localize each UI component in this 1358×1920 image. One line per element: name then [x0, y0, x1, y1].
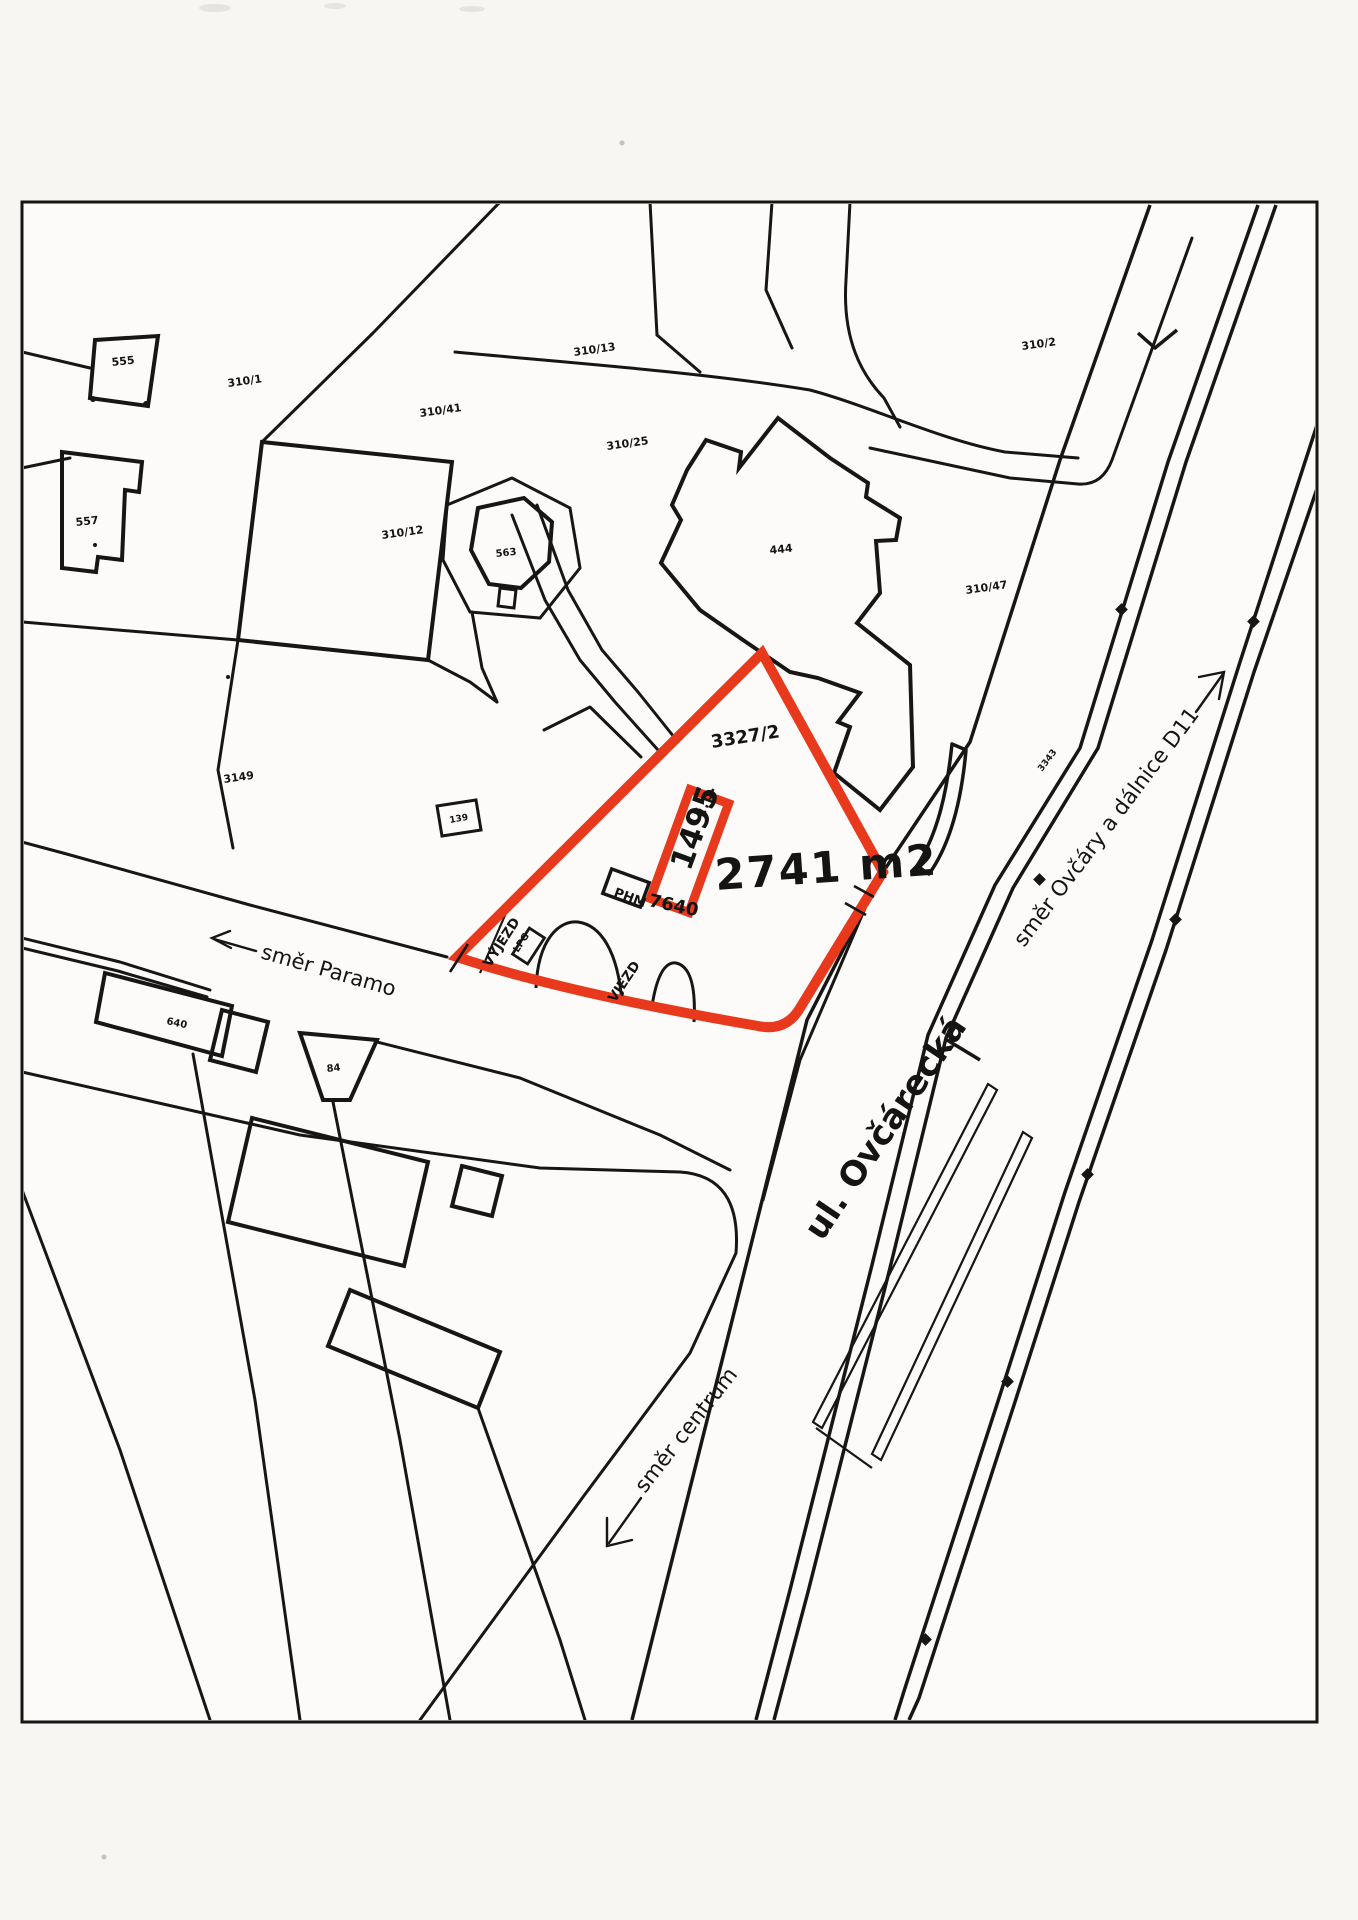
survey-dot [226, 675, 230, 679]
survey-dot [90, 396, 96, 402]
parcel-number: 555 [111, 354, 135, 369]
scan-dot [620, 141, 625, 146]
scan-dot [102, 1855, 107, 1860]
parcel-number: 444 [769, 542, 794, 557]
survey-dot [93, 543, 97, 547]
scan-smudge [199, 4, 231, 12]
scan-smudge [324, 3, 346, 9]
parcel-number: 563 [495, 547, 517, 560]
scan-smudge [459, 6, 485, 12]
survey-dot [143, 401, 149, 407]
parcel-number: 84 [326, 1063, 341, 1075]
cadastral-map: 2741 m2 3327/2 č.p. 1495 7640 PHM LPG VÝ… [0, 0, 1358, 1920]
parcel-number: 557 [75, 514, 99, 529]
scanned-map-page: 2741 m2 3327/2 č.p. 1495 7640 PHM LPG VÝ… [0, 0, 1358, 1920]
